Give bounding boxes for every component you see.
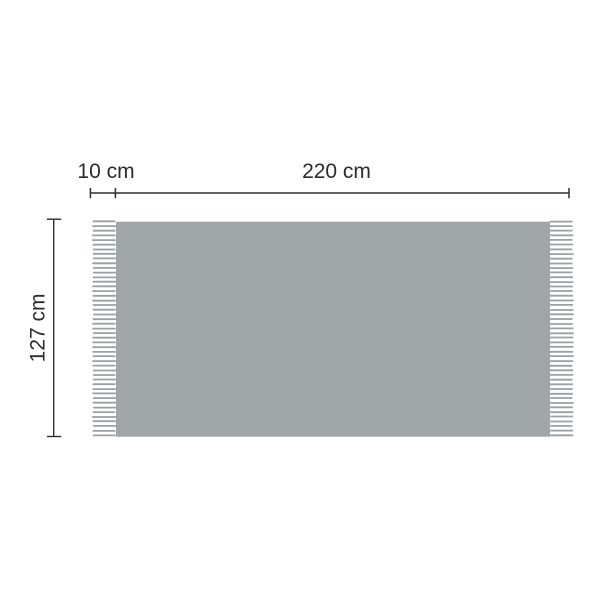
- svg-text:10 cm: 10 cm: [77, 160, 134, 183]
- svg-text:220 cm: 220 cm: [302, 160, 371, 183]
- svg-text:127 cm: 127 cm: [26, 293, 49, 362]
